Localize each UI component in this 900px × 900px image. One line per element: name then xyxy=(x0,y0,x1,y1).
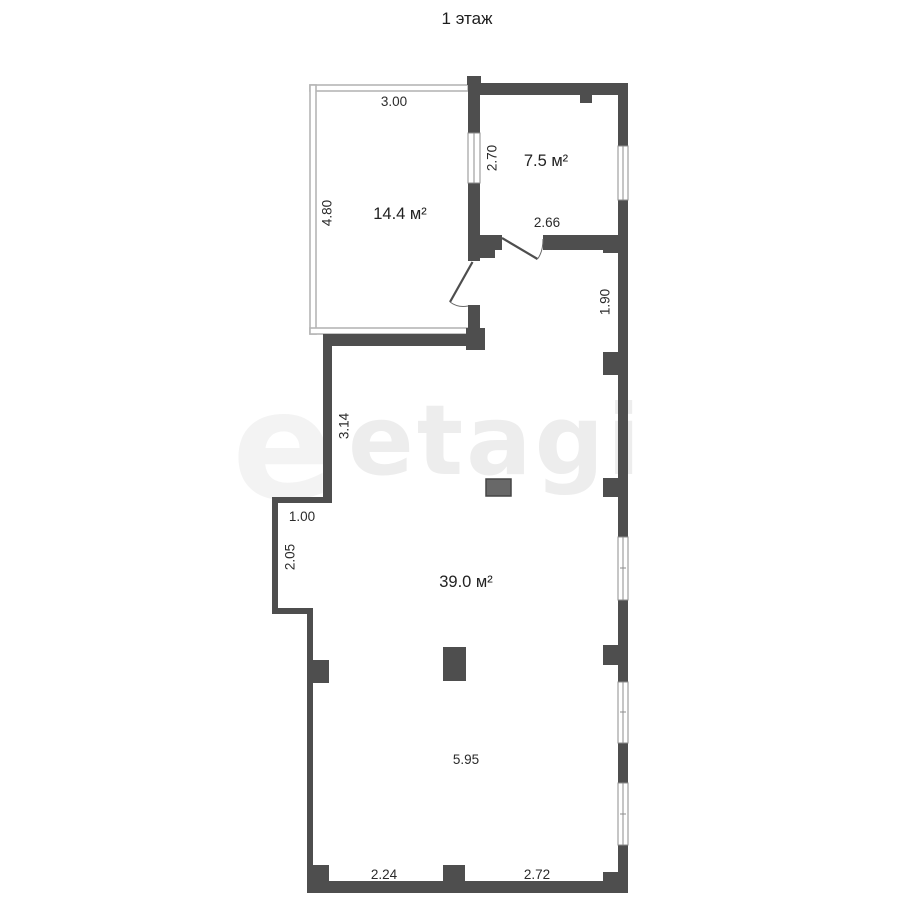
wall-segment xyxy=(618,743,628,783)
dim-small-width: 2.66 xyxy=(534,215,560,230)
wall-segment xyxy=(468,235,502,250)
wall-segment xyxy=(307,881,628,893)
dim-small-height: 2.70 xyxy=(485,145,500,171)
dim-bottom-right: 2.72 xyxy=(524,867,550,882)
dim-bottom-left: 2.24 xyxy=(371,867,398,882)
wall-column xyxy=(443,865,465,881)
dim-main-left-upper: 3.14 xyxy=(337,412,352,439)
area-loggia: 14.4 м² xyxy=(373,205,427,223)
dim-niche-height: 2.05 xyxy=(283,544,298,570)
floor-plan: e etagi 1 этаж xyxy=(0,0,900,900)
wall-segment xyxy=(307,608,313,893)
wall-segment xyxy=(468,95,480,133)
wall-segment xyxy=(618,600,628,682)
area-small: 7.5 м² xyxy=(524,152,569,170)
wall-segment xyxy=(618,83,628,146)
watermark-partial-glyph: e xyxy=(232,360,334,534)
window xyxy=(468,133,480,183)
loggia-wall-top xyxy=(310,85,468,91)
loggia-wall-left xyxy=(310,85,316,334)
wall-segment xyxy=(323,334,485,346)
wall-segment xyxy=(618,845,628,893)
wall-segment xyxy=(323,334,332,503)
wall-segment xyxy=(480,250,495,258)
wall-segment xyxy=(272,608,313,614)
plan-title: 1 этаж xyxy=(442,9,494,28)
dim-corridor-height: 1.90 xyxy=(598,289,613,315)
wall-segment xyxy=(468,305,480,328)
window xyxy=(618,146,628,200)
area-main: 39.0 м² xyxy=(439,573,493,591)
wall-segment xyxy=(272,497,278,614)
column xyxy=(443,647,466,681)
wall-segment xyxy=(618,200,628,537)
wall-segment xyxy=(580,95,592,103)
window xyxy=(618,682,628,743)
wall-segment xyxy=(272,497,332,503)
dim-niche-width: 1.00 xyxy=(289,509,315,524)
wall-column xyxy=(603,352,618,375)
wall-segment xyxy=(467,76,481,85)
wall-column xyxy=(603,240,618,253)
dim-loggia-height: 4.80 xyxy=(320,200,335,226)
vent-shaft xyxy=(486,479,511,496)
loggia-wall-bottom xyxy=(310,328,468,334)
wall-segment xyxy=(468,183,480,235)
window xyxy=(618,783,628,845)
wall-column xyxy=(603,645,618,665)
dim-loggia-width: 3.00 xyxy=(381,94,407,109)
window xyxy=(618,537,628,600)
dim-main-width: 5.95 xyxy=(453,752,479,767)
wall-segment xyxy=(468,83,628,95)
wall-column xyxy=(603,872,618,881)
wall-column xyxy=(603,478,618,497)
wall-column xyxy=(313,660,329,683)
wall-segment xyxy=(468,250,480,261)
wall-column xyxy=(308,865,329,881)
